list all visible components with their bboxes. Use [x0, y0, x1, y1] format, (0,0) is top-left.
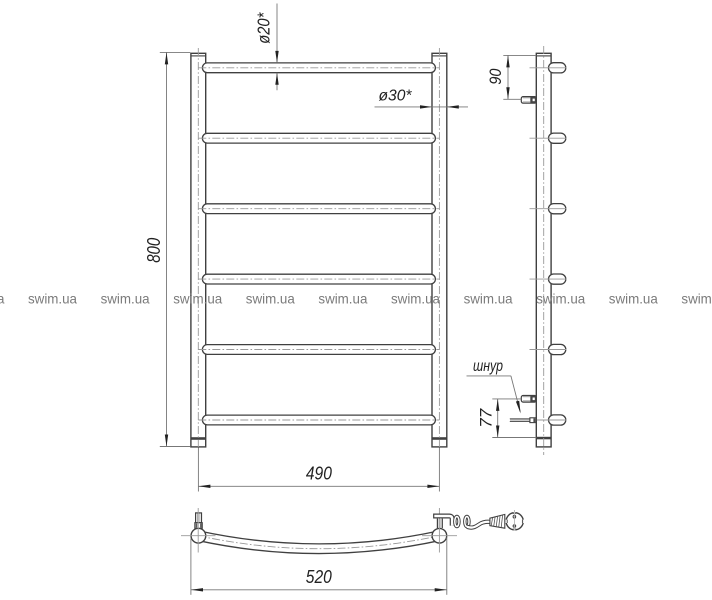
svg-text:swim.ua: swim.ua	[0, 291, 5, 307]
svg-text:800: 800	[144, 238, 164, 263]
svg-text:90: 90	[486, 68, 505, 84]
svg-text:ø20*: ø20*	[254, 12, 274, 44]
svg-text:swim.ua: swim.ua	[681, 291, 712, 307]
svg-text:ø30*: ø30*	[379, 88, 413, 105]
svg-text:520: 520	[306, 567, 332, 587]
svg-text:swim.ua: swim.ua	[101, 291, 150, 307]
svg-text:swim.ua: swim.ua	[173, 291, 222, 307]
svg-text:77: 77	[476, 408, 495, 428]
svg-text:шнур: шнур	[473, 358, 503, 375]
svg-text:swim.ua: swim.ua	[28, 291, 77, 307]
svg-text:490: 490	[306, 464, 332, 484]
svg-text:swim.ua: swim.ua	[464, 291, 513, 307]
svg-text:swim.ua: swim.ua	[536, 291, 585, 307]
svg-text:swim.ua: swim.ua	[391, 291, 440, 307]
svg-text:swim.ua: swim.ua	[609, 291, 658, 307]
svg-text:swim.ua: swim.ua	[246, 291, 295, 307]
svg-text:swim.ua: swim.ua	[318, 291, 367, 307]
